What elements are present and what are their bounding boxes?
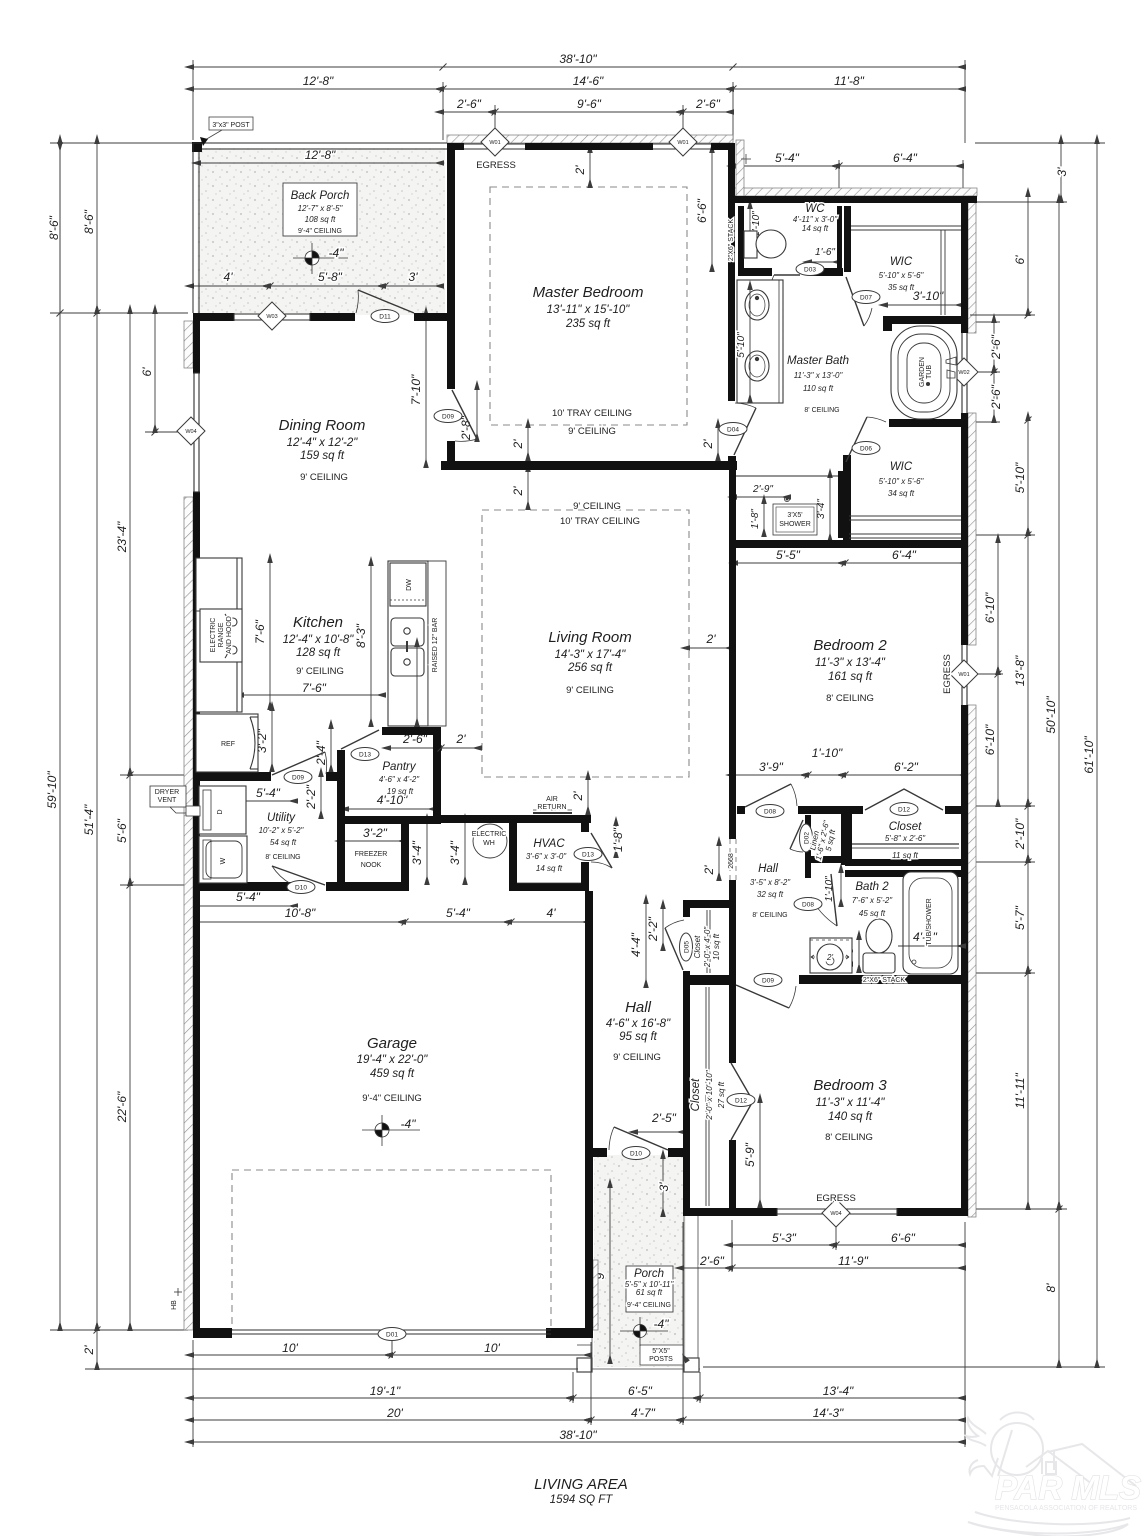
svg-text:14'-3": 14'-3"	[813, 1406, 844, 1420]
svg-text:2668: 2668	[728, 853, 735, 869]
svg-text:D12: D12	[735, 1098, 747, 1105]
svg-text:6'-6": 6'-6"	[891, 1231, 916, 1245]
svg-text:Master Bedroom: Master Bedroom	[533, 284, 644, 301]
svg-text:10'-8": 10'-8"	[285, 906, 316, 920]
svg-text:108 sq ft: 108 sq ft	[305, 215, 336, 224]
svg-text:3'-4": 3'-4"	[410, 840, 424, 865]
svg-text:Bath 2: Bath 2	[855, 881, 889, 893]
svg-text:8' CEILING: 8' CEILING	[804, 407, 839, 414]
svg-text:Hall: Hall	[758, 863, 778, 875]
svg-text:AIR: AIR	[546, 796, 558, 803]
svg-text:4'-6" x 16'-8": 4'-6" x 16'-8"	[606, 1018, 671, 1030]
svg-text:W02: W02	[958, 370, 969, 376]
svg-text:14'-6": 14'-6"	[573, 74, 604, 88]
svg-text:9'-6": 9'-6"	[577, 97, 602, 111]
svg-text:D07: D07	[860, 295, 872, 302]
svg-text:AND HOOD: AND HOOD	[226, 616, 233, 654]
svg-text:RANGE: RANGE	[218, 622, 225, 647]
svg-text:4'-4": 4'-4"	[629, 932, 643, 957]
svg-text:D11: D11	[379, 314, 391, 321]
svg-text:2'-5": 2'-5"	[651, 1111, 677, 1125]
svg-text:2': 2'	[826, 953, 833, 962]
svg-text:6'-10": 6'-10"	[983, 724, 997, 755]
svg-text:LIVING AREA: LIVING AREA	[534, 1476, 628, 1493]
svg-text:5'-8": 5'-8"	[318, 270, 343, 284]
svg-text:8' CEILING: 8' CEILING	[826, 693, 874, 704]
svg-text:HVAC: HVAC	[533, 838, 565, 850]
svg-text:19'-4" x 22'-0": 19'-4" x 22'-0"	[357, 1054, 429, 1066]
svg-text:7'-6" x 5'-2": 7'-6" x 5'-2"	[852, 896, 893, 905]
svg-text:2'-10": 2'-10"	[1013, 818, 1027, 850]
svg-text:D08: D08	[802, 902, 814, 909]
svg-text:12'-8": 12'-8"	[305, 148, 336, 162]
svg-text:2': 2'	[82, 1345, 96, 1356]
svg-text:2"X6" STACK: 2"X6" STACK	[728, 219, 735, 262]
svg-text:8' CEILING: 8' CEILING	[825, 1132, 873, 1143]
svg-text:54 sq ft: 54 sq ft	[270, 838, 297, 847]
svg-text:256 sq ft: 256 sq ft	[567, 662, 613, 674]
svg-text:3'-10": 3'-10"	[913, 289, 944, 303]
svg-text:9'-4" CEILING: 9'-4" CEILING	[627, 1302, 671, 1309]
svg-text:D05: D05	[684, 941, 691, 953]
svg-text:5'-4": 5'-4"	[236, 890, 261, 904]
svg-text:HB: HB	[171, 1300, 178, 1310]
svg-text:27 sq ft: 27 sq ft	[717, 1081, 726, 1109]
svg-text:WH: WH	[483, 840, 495, 847]
svg-text:5'-9": 5'-9"	[743, 1142, 757, 1167]
svg-text:2': 2'	[706, 632, 717, 646]
svg-text:2'-6": 2'-6"	[699, 1254, 725, 1268]
svg-text:2'-0" x 4'-0": 2'-0" x 4'-0"	[703, 926, 712, 968]
svg-text:3'-4": 3'-4"	[448, 840, 462, 865]
svg-text:140 sq ft: 140 sq ft	[828, 1111, 873, 1123]
svg-text:50'-10": 50'-10"	[1044, 696, 1058, 734]
svg-text:13'-11" x 15'-10": 13'-11" x 15'-10"	[547, 304, 631, 316]
svg-text:34 sq ft: 34 sq ft	[888, 489, 915, 498]
svg-text:161 sq ft: 161 sq ft	[828, 671, 873, 683]
svg-text:2': 2'	[701, 439, 715, 450]
svg-text:Pantry: Pantry	[382, 761, 416, 773]
svg-text:11'-8": 11'-8"	[834, 74, 864, 88]
svg-text:W01: W01	[958, 672, 969, 678]
svg-text:6'-5": 6'-5"	[628, 1384, 653, 1398]
svg-text:459 sq ft: 459 sq ft	[370, 1068, 415, 1080]
svg-text:Master Bath: Master Bath	[787, 355, 849, 367]
svg-text:TUB/SHOWER: TUB/SHOWER	[926, 898, 933, 945]
svg-text:4'-11" x 3'-0": 4'-11" x 3'-0"	[793, 215, 838, 224]
svg-text:159 sq ft: 159 sq ft	[300, 450, 345, 462]
svg-text:5'-10": 5'-10"	[736, 332, 747, 358]
svg-text:W01: W01	[489, 140, 500, 146]
svg-text:20': 20'	[386, 1406, 403, 1420]
svg-text:11'-11": 11'-11"	[1013, 1073, 1027, 1109]
svg-text:RETURN: RETURN	[537, 804, 566, 811]
svg-text:7'-6": 7'-6"	[253, 619, 267, 644]
svg-text:3'-2": 3'-2"	[363, 826, 388, 840]
svg-text:Dining Room: Dining Room	[279, 417, 366, 434]
svg-text:Bedroom 3: Bedroom 3	[813, 1077, 887, 1094]
svg-text:2': 2'	[511, 486, 525, 497]
svg-text:Hall: Hall	[625, 999, 652, 1016]
svg-text:13'-8": 13'-8"	[1013, 655, 1027, 686]
svg-text:D13: D13	[359, 752, 371, 759]
svg-text:128 sq ft: 128 sq ft	[296, 647, 341, 659]
svg-text:3'X5': 3'X5'	[787, 512, 802, 519]
svg-text:12'-4" x 12'-2": 12'-4" x 12'-2"	[287, 437, 359, 449]
svg-text:8'-3": 8'-3"	[354, 623, 368, 648]
svg-text:1594 SQ FT: 1594 SQ FT	[550, 1494, 614, 1506]
svg-text:10': 10'	[282, 1341, 298, 1355]
svg-text:6': 6'	[140, 367, 154, 377]
svg-text:3'-5" x 8'-2": 3'-5" x 8'-2"	[750, 878, 791, 887]
svg-text:10' TRAY CEILING: 10' TRAY CEILING	[560, 516, 640, 527]
svg-text:95 sq ft: 95 sq ft	[619, 1031, 658, 1043]
svg-text:WIC: WIC	[890, 256, 913, 268]
svg-text:6'-10": 6'-10"	[983, 592, 997, 623]
svg-text:11'-3" x 11'-4": 11'-3" x 11'-4"	[815, 1097, 885, 1109]
svg-text:D10: D10	[630, 1151, 642, 1158]
svg-text:Porch: Porch	[634, 1268, 664, 1280]
svg-text:2': 2'	[702, 865, 716, 876]
svg-text:GARDEN: GARDEN	[919, 357, 926, 387]
svg-text:EGRESS: EGRESS	[476, 160, 516, 171]
svg-text:2': 2'	[571, 791, 585, 802]
svg-text:11 sq ft: 11 sq ft	[892, 851, 918, 860]
svg-text:5'-4": 5'-4"	[256, 786, 281, 800]
svg-text:4'-7": 4'-7"	[631, 1406, 656, 1420]
svg-text:3"x3" POST: 3"x3" POST	[212, 122, 250, 129]
svg-text:1'-6": 1'-6"	[815, 247, 835, 258]
svg-text:D10: D10	[295, 885, 307, 892]
svg-text:ELECTRIC: ELECTRIC	[210, 618, 217, 653]
svg-text:11'-3" x 13'-4": 11'-3" x 13'-4"	[815, 657, 886, 669]
svg-text:9'-4" CEILING: 9'-4" CEILING	[298, 228, 342, 235]
svg-text:45 sq ft: 45 sq ft	[859, 909, 886, 918]
svg-text:-4": -4"	[401, 1117, 417, 1131]
svg-text:NOOK: NOOK	[361, 862, 382, 869]
svg-text:5'-10" x 5'-6": 5'-10" x 5'-6"	[879, 271, 925, 280]
svg-text:WIC: WIC	[890, 461, 913, 473]
svg-text:Garage: Garage	[367, 1035, 417, 1052]
svg-text:Closet: Closet	[690, 1078, 702, 1111]
svg-text:D09: D09	[442, 414, 454, 421]
svg-text:5'-7": 5'-7"	[1013, 905, 1027, 930]
svg-text:12'-4" x 10'-8": 12'-4" x 10'-8"	[283, 634, 355, 646]
svg-text:Closet: Closet	[889, 821, 922, 833]
svg-text:38'-10": 38'-10"	[559, 1428, 597, 1442]
svg-text:2'-6": 2'-6"	[456, 97, 482, 111]
svg-text:D06: D06	[860, 446, 872, 453]
svg-text:6': 6'	[1013, 255, 1027, 265]
svg-text:PAR MLS: PAR MLS	[995, 1469, 1141, 1506]
svg-text:D01: D01	[386, 1332, 398, 1339]
svg-text:235 sq ft: 235 sq ft	[565, 318, 611, 330]
svg-text:19 sq ft: 19 sq ft	[387, 787, 414, 796]
svg-text:5"X5": 5"X5"	[652, 1348, 670, 1355]
svg-text:Utility: Utility	[267, 812, 296, 824]
svg-text:D13: D13	[582, 852, 594, 859]
svg-text:W01: W01	[677, 140, 688, 146]
svg-text:6'-4": 6'-4"	[893, 151, 918, 165]
svg-text:Living Room: Living Room	[548, 629, 631, 646]
svg-text:Bedroom 2: Bedroom 2	[813, 637, 887, 654]
svg-text:6'-4": 6'-4"	[892, 548, 917, 562]
svg-text:9'-4" CEILING: 9'-4" CEILING	[362, 1093, 422, 1104]
svg-text:1'-8": 1'-8"	[611, 827, 625, 852]
svg-text:8' CEILING: 8' CEILING	[265, 854, 300, 861]
svg-text:3'-9": 3'-9"	[759, 760, 784, 774]
svg-text:38'-10": 38'-10"	[559, 52, 597, 66]
svg-text:3': 3'	[1055, 167, 1069, 177]
svg-text:3': 3'	[657, 1182, 671, 1192]
svg-text:Kitchen: Kitchen	[293, 614, 343, 631]
svg-text:8'-6": 8'-6"	[47, 215, 61, 240]
svg-text:9' CEILING: 9' CEILING	[566, 685, 614, 696]
svg-text:FREEZER: FREEZER	[355, 851, 388, 858]
svg-text:32 sq ft: 32 sq ft	[757, 890, 784, 899]
svg-text:12'-8": 12'-8"	[303, 74, 334, 88]
svg-text:5'-5": 5'-5"	[776, 548, 801, 562]
svg-text:REF: REF	[221, 741, 235, 748]
svg-text:22'-6": 22'-6"	[115, 1091, 129, 1123]
svg-text:2': 2'	[456, 732, 467, 746]
svg-text:5'-6": 5'-6"	[115, 818, 129, 843]
svg-text:W04: W04	[185, 429, 196, 435]
svg-text:35 sq ft: 35 sq ft	[888, 283, 915, 292]
svg-text:D: D	[217, 809, 224, 814]
svg-text:10'-2" x 5'-2": 10'-2" x 5'-2"	[259, 826, 305, 835]
svg-text:10' TRAY CEILING: 10' TRAY CEILING	[552, 408, 632, 419]
svg-text:14 sq ft: 14 sq ft	[802, 224, 829, 233]
svg-text:1'-10": 1'-10"	[812, 746, 843, 760]
svg-text:5'-8" x 2'-6": 5'-8" x 2'-6"	[885, 834, 926, 843]
svg-text:Closet: Closet	[693, 935, 702, 958]
svg-text:POSTS: POSTS	[649, 1356, 673, 1363]
svg-text:2'-6": 2'-6"	[989, 334, 1003, 360]
svg-text:Back Porch: Back Porch	[291, 190, 350, 202]
svg-text:3'-4": 3'-4"	[816, 499, 827, 519]
svg-text:14 sq ft: 14 sq ft	[536, 864, 563, 873]
svg-text:4'-6" x 4'-2": 4'-6" x 4'-2"	[379, 775, 420, 784]
svg-text:5'-4": 5'-4"	[446, 906, 471, 920]
svg-text:2'-2": 2'-2"	[646, 916, 660, 942]
svg-text:D09: D09	[762, 978, 774, 985]
svg-text:2': 2'	[573, 165, 587, 176]
svg-text:7'-6": 7'-6"	[302, 681, 327, 695]
svg-text:10 sq ft: 10 sq ft	[712, 933, 721, 960]
svg-text:SHOWER: SHOWER	[779, 521, 811, 528]
svg-text:11'-9": 11'-9"	[838, 1254, 868, 1268]
svg-text:W03: W03	[266, 314, 277, 320]
svg-text:9' CEILING: 9' CEILING	[573, 501, 621, 512]
svg-text:10': 10'	[484, 1341, 500, 1355]
svg-text:13'-4": 13'-4"	[823, 1384, 854, 1398]
svg-text:12'-7" x 8'-5": 12'-7" x 8'-5"	[298, 204, 344, 213]
svg-text:4': 4'	[224, 270, 234, 284]
svg-text:9' CEILING: 9' CEILING	[300, 472, 348, 483]
svg-text:61'-10": 61'-10"	[1082, 736, 1096, 774]
svg-text:-4": -4"	[654, 1317, 670, 1331]
svg-text:RAISED 12" BAR: RAISED 12" BAR	[432, 618, 439, 673]
svg-text:7'-10": 7'-10"	[409, 374, 423, 405]
svg-text:VENT: VENT	[158, 797, 177, 804]
svg-text:5'-3": 5'-3"	[772, 1231, 797, 1245]
svg-text:DRYER: DRYER	[155, 789, 179, 796]
svg-text:D04: D04	[727, 427, 739, 434]
svg-text:5'-10": 5'-10"	[1013, 462, 1027, 493]
svg-text:51'-4": 51'-4"	[82, 804, 96, 835]
svg-text:3': 3'	[409, 270, 419, 284]
svg-text:8': 8'	[1044, 1283, 1058, 1293]
svg-text:D12: D12	[898, 807, 910, 814]
svg-text:ELECTRIC: ELECTRIC	[472, 831, 507, 838]
svg-text:9' CEILING: 9' CEILING	[613, 1052, 661, 1063]
svg-text:8'-6": 8'-6"	[82, 209, 96, 234]
svg-text:6'-2": 6'-2"	[894, 760, 919, 774]
svg-text:110 sq ft: 110 sq ft	[803, 384, 834, 393]
svg-text:2'-6": 2'-6"	[989, 384, 1003, 410]
svg-text:-4": -4"	[329, 246, 345, 260]
svg-text:14'-3" x 17'-4": 14'-3" x 17'-4"	[555, 649, 627, 661]
svg-text:8' CEILING: 8' CEILING	[752, 912, 787, 919]
svg-text:2'-6": 2'-6"	[695, 97, 721, 111]
svg-text:6'-6": 6'-6"	[695, 198, 709, 223]
svg-text:D08: D08	[764, 809, 776, 816]
svg-text:5'-4": 5'-4"	[775, 151, 800, 165]
svg-text:1'-8": 1'-8"	[750, 509, 761, 529]
svg-text:EGRESS: EGRESS	[816, 1193, 856, 1204]
svg-text:2"X6" STACK: 2"X6" STACK	[863, 977, 906, 984]
svg-text:59'-10": 59'-10"	[45, 771, 59, 809]
svg-text:19'-1": 19'-1"	[370, 1384, 401, 1398]
svg-text:DW: DW	[406, 579, 413, 591]
svg-text:WC: WC	[805, 203, 825, 215]
svg-text:D09: D09	[292, 775, 304, 782]
svg-text:2': 2'	[511, 439, 525, 450]
svg-text:2'-9": 2'-9"	[752, 484, 773, 495]
svg-text:61 sq ft: 61 sq ft	[636, 1288, 663, 1297]
svg-text:D03: D03	[804, 267, 816, 274]
svg-text:TUB: TUB	[926, 365, 933, 379]
svg-text:2'-0" x 10'-10": 2'-0" x 10'-10"	[705, 1069, 714, 1120]
svg-text:5'-10" x 5'-6": 5'-10" x 5'-6"	[879, 477, 925, 486]
svg-text:23'-4": 23'-4"	[115, 521, 129, 553]
svg-text:9' CEILING: 9' CEILING	[296, 666, 344, 677]
svg-text:4': 4'	[547, 906, 557, 920]
svg-text:11'-3" x 13'-0": 11'-3" x 13'-0"	[794, 371, 844, 380]
svg-text:W: W	[220, 857, 227, 864]
svg-text:9' CEILING: 9' CEILING	[568, 426, 616, 437]
svg-text:2'-2": 2'-2"	[304, 784, 318, 810]
svg-text:PENSACOLA ASSOCIATION OF REALT: PENSACOLA ASSOCIATION OF REALTORS	[995, 1505, 1137, 1512]
svg-text:3'-6" x 3'-0": 3'-6" x 3'-0"	[526, 852, 567, 861]
svg-text:W04: W04	[830, 1211, 841, 1217]
svg-text:EGRESS: EGRESS	[942, 654, 953, 694]
